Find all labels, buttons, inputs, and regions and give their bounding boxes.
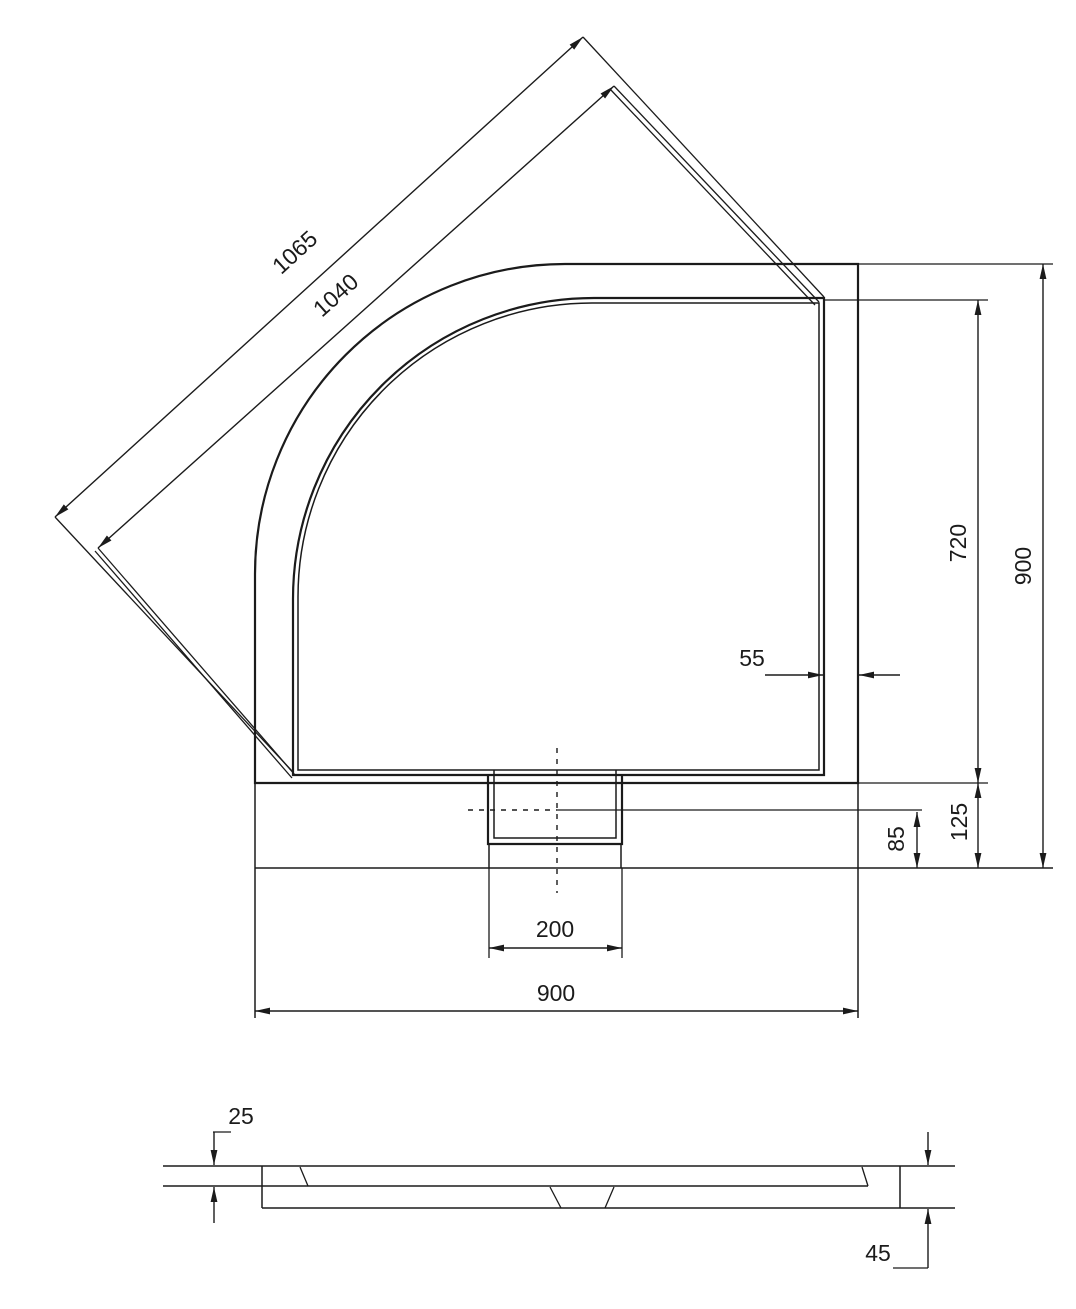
- dim-label-200: 200: [536, 916, 574, 942]
- tray-rim-outer-edge: [293, 298, 824, 775]
- ext-diag-inner-top-a: [614, 86, 819, 302]
- drawing-sheet: 1065 1040 720 900 125 85 55 200 900: [0, 0, 1076, 1309]
- dim-label-900-vertical: 900: [1010, 547, 1036, 585]
- dim-label-1065: 1065: [267, 225, 322, 279]
- ext-diag-outer-top: [583, 37, 824, 297]
- side-view: 25 45: [163, 1103, 955, 1268]
- technical-drawing: 1065 1040 720 900 125 85 55 200 900: [0, 0, 1076, 1309]
- plan-view: 1065 1040 720 900 125 85 55 200 900: [55, 37, 1053, 1018]
- dim-line-1040: [98, 86, 614, 548]
- ext-diag-inner-top-b: [610, 89, 815, 305]
- dim-label-85: 85: [883, 826, 909, 852]
- side-right-wall-slope: [862, 1167, 868, 1186]
- dim-label-45: 45: [865, 1240, 891, 1266]
- dim-label-25: 25: [228, 1103, 254, 1129]
- ext-diag-inner-bottom-a: [98, 548, 295, 775]
- dim-line-1065: [55, 37, 583, 517]
- ext-diag-inner-bottom-b: [95, 551, 292, 778]
- side-left-wall-slope: [300, 1167, 308, 1186]
- dim-label-125: 125: [946, 803, 972, 841]
- dim-label-55: 55: [739, 645, 765, 671]
- side-drain-recess-left: [550, 1187, 561, 1208]
- tray-rim-inner-edge: [298, 303, 819, 770]
- dim-label-900-horizontal: 900: [537, 980, 575, 1006]
- side-drain-recess-right: [605, 1187, 614, 1208]
- tray-outer-profile: [255, 264, 858, 783]
- dim-label-720: 720: [945, 524, 971, 562]
- dim-label-1040: 1040: [308, 268, 363, 321]
- drain-box-inner: [494, 770, 616, 838]
